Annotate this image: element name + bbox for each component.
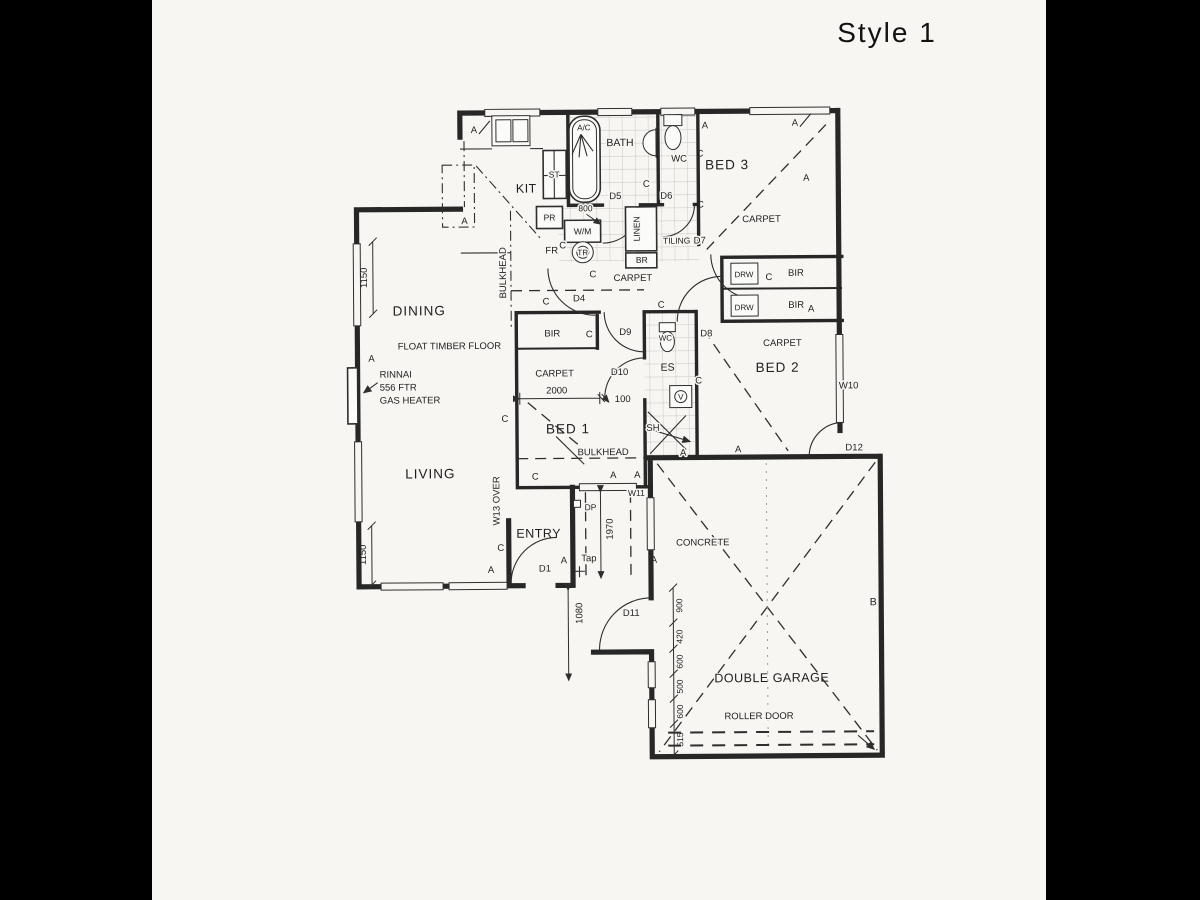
heater-line1: RINNAI (380, 369, 412, 380)
dim-600-a: 600 (675, 654, 685, 669)
label-drw-bed3: DRW (734, 270, 753, 279)
dim-420: 420 (674, 629, 684, 644)
tag-d7: D7 (694, 235, 706, 246)
svg-text:C: C (532, 472, 539, 483)
svg-text:A: A (634, 470, 641, 481)
label-tap: Tap (581, 553, 596, 564)
tag-d10: D10 (611, 367, 629, 378)
dim-2000: 2000 (546, 385, 567, 396)
tag-w13-over: W13 OVER (491, 476, 502, 525)
label-br: BR (636, 255, 648, 265)
label-roller-door: ROLLER DOOR (724, 711, 793, 722)
heater-line2: 556 FTR (380, 382, 417, 393)
svg-text:C: C (658, 300, 665, 311)
svg-text:A: A (561, 555, 568, 566)
svg-text:C: C (589, 269, 596, 280)
svg-text:C: C (765, 272, 772, 283)
label-ac: A/C (577, 123, 591, 132)
room-label-bath: BATH (606, 137, 633, 149)
label-tiling: TILING (663, 236, 690, 246)
label-wm: W/M (574, 226, 592, 236)
svg-text:A: A (368, 354, 375, 365)
tag-d4: D4 (573, 293, 585, 304)
label-pr: PR (544, 212, 556, 222)
heater-line3: GAS HEATER (380, 395, 441, 406)
room-label-wc: WC (671, 154, 687, 165)
svg-text:C: C (643, 179, 650, 190)
label-bir-bed2: BIR (788, 300, 804, 311)
label-carpet-bed1: CARPET (535, 368, 574, 379)
svg-text:C: C (559, 240, 566, 251)
room-label-bed1: BED 1 (546, 421, 590, 436)
tag-w11: W11 (628, 488, 645, 498)
room-label-living: LIVING (405, 466, 455, 481)
svg-text:A: A (471, 125, 478, 136)
svg-text:A: A (461, 216, 468, 227)
tag-d12: D12 (845, 442, 863, 453)
room-label-kitchen: KIT (516, 182, 537, 196)
tag-d9: D9 (619, 327, 631, 338)
page-title: Style 1 (837, 17, 937, 48)
label-sh: SH (646, 423, 659, 434)
label-carpet-bed3: CARPET (742, 214, 781, 225)
dim-800: 800 (578, 203, 593, 213)
label-carpet-hall: CARPET (614, 273, 653, 284)
tag-d5: D5 (609, 191, 621, 202)
svg-text:A: A (680, 448, 687, 459)
room-label-ensuite: ES (661, 362, 675, 374)
label-dp: DP (585, 502, 597, 512)
label-bir-bed3: BIR (788, 268, 804, 279)
dim-515: 515 (675, 732, 685, 747)
svg-text:A: A (488, 565, 495, 576)
window-w10 (836, 334, 844, 422)
tag-w10: W10 (839, 380, 859, 391)
toilet-bowl (665, 126, 681, 150)
room-label-bed3: BED 3 (705, 157, 749, 172)
svg-text:C: C (543, 296, 550, 307)
room-label-entry: ENTRY (516, 526, 561, 540)
room-label-concrete: CONCRETE (676, 537, 729, 548)
dim-600-b: 600 (675, 704, 685, 719)
dim-1970: 1970 (605, 518, 616, 539)
svg-text:A: A (702, 120, 709, 131)
svg-text:C: C (697, 148, 704, 159)
toilet-cistern (664, 115, 682, 126)
dim-1150-top: 1150 (359, 268, 370, 289)
label-pantry-st: ST (549, 169, 560, 179)
tag-d8: D8 (700, 328, 712, 339)
dim-900: 900 (674, 598, 684, 613)
downpipe (573, 500, 580, 507)
label-drw-bed2: DRW (735, 303, 754, 312)
room-label-garage: DOUBLE GARAGE (714, 671, 829, 686)
floor-plan: Style 1 (0, 0, 1200, 900)
label-float-timber-floor: FLOAT TIMBER FLOOR (398, 341, 502, 353)
scanned-floorplan-page: Style 1 (0, 0, 1200, 900)
label-vanity: V (678, 393, 684, 402)
svg-text:A: A (735, 444, 742, 455)
svg-text:C: C (501, 414, 508, 425)
label-bulkhead-bed1: BULKHEAD (578, 447, 629, 458)
mark-b: B (870, 596, 877, 608)
room-label-dining: DINING (392, 303, 445, 318)
svg-text:C: C (497, 543, 504, 554)
svg-text:A: A (792, 118, 799, 129)
label-fr: FR (545, 245, 558, 256)
svg-text:A: A (651, 555, 658, 566)
gas-heater-unit (348, 368, 358, 424)
dim-1150-bottom: 1150 (358, 545, 369, 566)
ensuite-cistern (659, 323, 675, 332)
svg-text:A: A (610, 470, 617, 481)
dim-100: 100 (615, 394, 631, 405)
svg-text:C: C (695, 375, 702, 386)
label-linen: LINEN (632, 216, 642, 241)
room-label-bed2: BED 2 (755, 360, 799, 375)
svg-text:A: A (803, 173, 810, 184)
dim-1080: 1080 (574, 603, 585, 624)
tag-d1: D1 (539, 563, 551, 574)
label-carpet-bed2: CARPET (763, 338, 802, 349)
svg-text:A: A (808, 304, 815, 315)
label-bulkhead-kitchen: BULKHEAD (498, 247, 509, 298)
dim-500: 500 (675, 679, 685, 694)
label-tr: TR (577, 248, 588, 257)
tag-d11: D11 (623, 608, 640, 619)
label-ensuite-wc: WC (659, 334, 673, 343)
svg-text:C: C (697, 199, 704, 210)
label-bir-bed1: BIR (544, 328, 560, 339)
tag-d6: D6 (660, 191, 672, 202)
svg-text:C: C (586, 329, 593, 340)
